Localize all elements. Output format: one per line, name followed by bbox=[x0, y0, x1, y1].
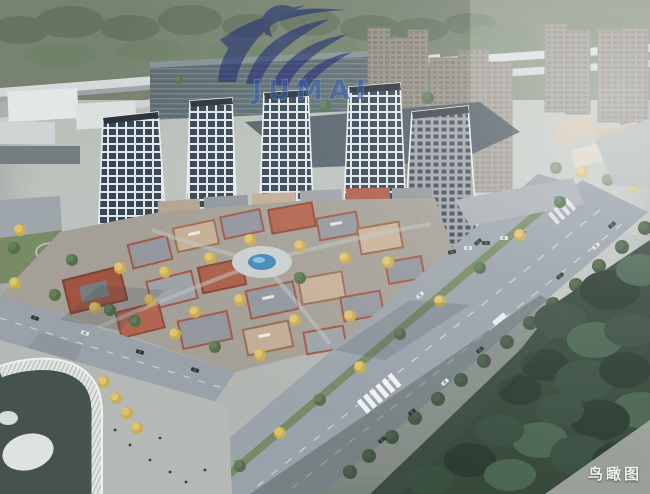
aerial-rendering: JUMAI 鸟瞰图 bbox=[0, 0, 650, 494]
watermark-text: JUMAI bbox=[250, 75, 372, 106]
caption-label: 鸟瞰图 bbox=[588, 463, 642, 484]
rendering-canvas: JUMAI bbox=[0, 0, 650, 494]
